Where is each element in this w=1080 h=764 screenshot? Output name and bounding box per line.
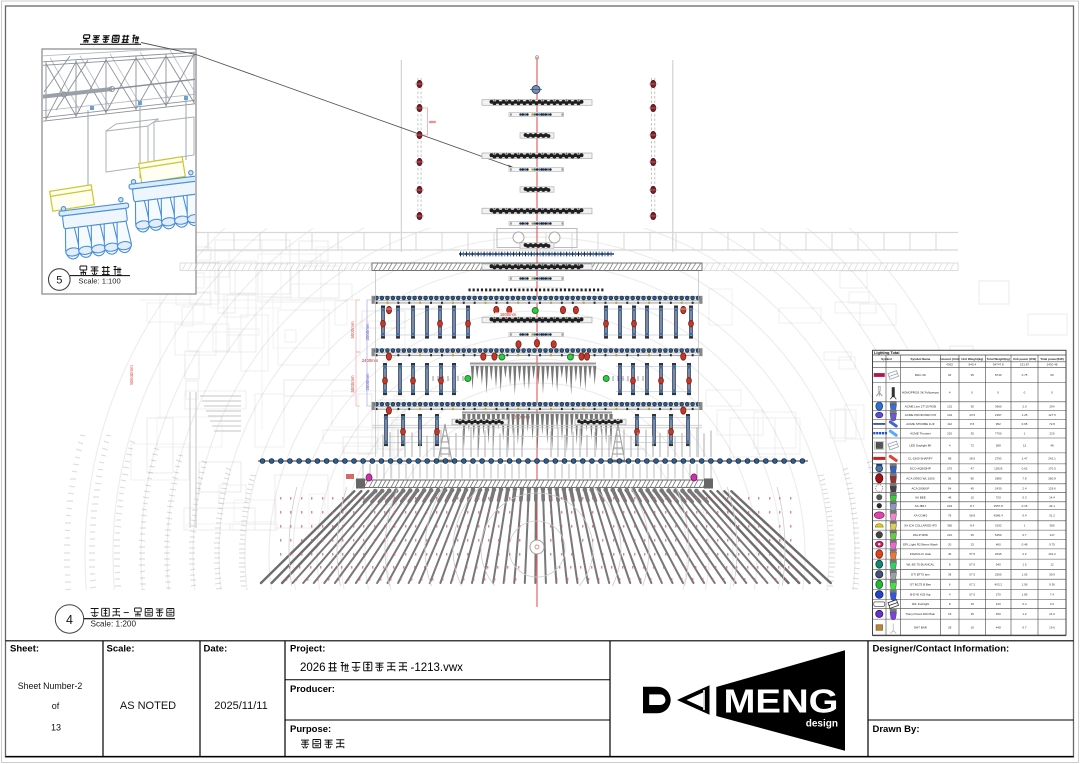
svg-text:Designer/Contact Information:: Designer/Contact Information: bbox=[873, 644, 1010, 655]
svg-text:380: 380 bbox=[947, 524, 952, 528]
svg-text:1.2: 1.2 bbox=[1022, 612, 1027, 616]
svg-text:8.7: 8.7 bbox=[970, 504, 975, 508]
svg-text:0.7: 0.7 bbox=[1022, 533, 1027, 537]
svg-text:80: 80 bbox=[971, 477, 975, 481]
svg-text:129.6: 129.6 bbox=[1048, 486, 1056, 490]
svg-text:4000: 4000 bbox=[429, 120, 436, 124]
svg-text:ACME STROBE 1UF: ACME STROBE 1UF bbox=[906, 422, 935, 426]
svg-text:Drawn By:: Drawn By: bbox=[873, 724, 920, 735]
svg-text:280.8: 280.8 bbox=[1048, 477, 1056, 481]
svg-text:B-EYE K25 Aqr: B-EYE K25 Aqr bbox=[910, 593, 931, 597]
svg-text:0.4: 0.4 bbox=[1022, 513, 1027, 517]
svg-text:7.8: 7.8 bbox=[1022, 477, 1027, 481]
svg-text:19.6: 19.6 bbox=[1049, 626, 1055, 630]
svg-text:270: 270 bbox=[996, 593, 1001, 597]
svg-text:ECO AQ500HP: ECO AQ500HP bbox=[910, 467, 931, 471]
svg-text:95: 95 bbox=[971, 373, 975, 377]
svg-text:-1213.vwx: -1213.vwx bbox=[411, 662, 464, 674]
svg-text:2.4: 2.4 bbox=[1022, 486, 1027, 490]
svg-text:170.5: 170.5 bbox=[1048, 467, 1056, 471]
svg-text:39.9: 39.9 bbox=[1049, 572, 1055, 576]
svg-text:2557.8: 2557.8 bbox=[994, 504, 1004, 508]
svg-text:2565: 2565 bbox=[995, 572, 1002, 576]
svg-text:78: 78 bbox=[948, 513, 952, 517]
svg-text:3.2: 3.2 bbox=[1050, 602, 1055, 606]
svg-text:16: 16 bbox=[971, 626, 975, 630]
svg-text:WL BS 75 BLANCAL: WL BS 75 BLANCAL bbox=[906, 562, 934, 566]
svg-text:448: 448 bbox=[996, 626, 1001, 630]
svg-text:2.0: 2.0 bbox=[1022, 404, 1027, 408]
svg-text:GT BC75 B.Bse: GT BC75 B.Bse bbox=[910, 583, 932, 587]
svg-text:69: 69 bbox=[1050, 373, 1054, 377]
svg-text:Total power(KW): Total power(KW) bbox=[1040, 357, 1064, 361]
svg-text:Unit power (KW): Unit power (KW) bbox=[1013, 357, 1036, 361]
svg-text:67.5: 67.5 bbox=[969, 593, 975, 597]
svg-text:54747.8: 54747.8 bbox=[993, 363, 1004, 367]
svg-text:36: 36 bbox=[948, 477, 952, 481]
svg-text:1.5: 1.5 bbox=[1022, 562, 1027, 566]
svg-text:4362: 4362 bbox=[946, 363, 953, 367]
svg-text:0.7: 0.7 bbox=[1022, 626, 1027, 630]
svg-text:403.2: 403.2 bbox=[994, 583, 1002, 587]
svg-text:Sheet:: Sheet: bbox=[10, 644, 39, 655]
svg-text:5250: 5250 bbox=[995, 533, 1002, 537]
svg-text:48: 48 bbox=[1050, 444, 1054, 448]
svg-text:54: 54 bbox=[948, 486, 952, 490]
svg-text:50640mm: 50640mm bbox=[129, 365, 134, 385]
svg-text:1.05: 1.05 bbox=[1022, 572, 1028, 576]
svg-text:720: 720 bbox=[996, 495, 1001, 499]
svg-text:92: 92 bbox=[948, 373, 952, 377]
svg-text:952: 952 bbox=[996, 422, 1001, 426]
svg-text:8.5: 8.5 bbox=[970, 422, 975, 426]
svg-text:0.48: 0.48 bbox=[1022, 542, 1028, 546]
svg-text:25: 25 bbox=[971, 612, 975, 616]
svg-text:450: 450 bbox=[996, 612, 1001, 616]
svg-text:25: 25 bbox=[971, 533, 975, 537]
svg-text:101.2: 101.2 bbox=[1048, 552, 1056, 556]
svg-text:9.36: 9.36 bbox=[1049, 583, 1055, 587]
svg-text:112: 112 bbox=[947, 422, 952, 426]
svg-text:KAVACH II Halo: KAVACH II Halo bbox=[910, 552, 932, 556]
svg-text:28.5: 28.5 bbox=[969, 457, 975, 461]
svg-text:2430.48: 2430.48 bbox=[1047, 363, 1058, 367]
svg-text:Symbol: Symbol bbox=[881, 357, 892, 361]
svg-text:5000mm: 5000mm bbox=[350, 375, 355, 392]
svg-text:Sheet Number-2: Sheet Number-2 bbox=[18, 681, 83, 691]
svg-text:38: 38 bbox=[948, 572, 952, 576]
svg-text:12: 12 bbox=[1050, 562, 1054, 566]
svg-text:Scale: 1:200: Scale: 1:200 bbox=[91, 620, 137, 629]
svg-text:2430: 2430 bbox=[995, 486, 1002, 490]
svg-text:ACA CREO WL 1000: ACA CREO WL 1000 bbox=[906, 477, 935, 481]
svg-text:Total Weight(kg): Total Weight(kg) bbox=[987, 357, 1010, 361]
svg-text:460: 460 bbox=[996, 542, 1001, 546]
svg-text:4: 4 bbox=[66, 613, 73, 627]
svg-text:264: 264 bbox=[1049, 404, 1054, 408]
svg-text:8740: 8740 bbox=[995, 373, 1002, 377]
svg-text:7700: 7700 bbox=[995, 431, 1002, 435]
svg-text:67.5: 67.5 bbox=[969, 572, 975, 576]
svg-text:MAC 2K: MAC 2K bbox=[915, 373, 926, 377]
svg-text:12: 12 bbox=[1023, 444, 1027, 448]
svg-text:CL-1500 SHARPY: CL-1500 SHARPY bbox=[908, 457, 933, 461]
svg-text:design: design bbox=[806, 719, 838, 730]
svg-text:2000mm: 2000mm bbox=[365, 323, 370, 340]
svg-text:ACME Line 27*10 RGB: ACME Line 27*10 RGB bbox=[905, 404, 936, 408]
svg-text:MENG: MENG bbox=[724, 682, 839, 719]
svg-text:AS NOTED: AS NOTED bbox=[120, 700, 176, 712]
svg-text:132: 132 bbox=[947, 404, 952, 408]
svg-text:0.75: 0.75 bbox=[1022, 373, 1028, 377]
svg-text:3192: 3192 bbox=[995, 524, 1002, 528]
svg-text:Lighting Total: Lighting Total bbox=[874, 350, 899, 355]
svg-text:Amount (Unit): Amount (Unit) bbox=[940, 357, 960, 361]
svg-text:45: 45 bbox=[971, 486, 975, 490]
svg-text:3960: 3960 bbox=[995, 404, 1002, 408]
svg-text:ACA 2000UP: ACA 2000UP bbox=[912, 486, 930, 490]
svg-text:LED Daylight 8K: LED Daylight 8K bbox=[909, 444, 931, 448]
svg-text:15: 15 bbox=[971, 602, 975, 606]
svg-text:940.4: 940.4 bbox=[968, 363, 976, 367]
svg-text:294: 294 bbox=[947, 504, 952, 508]
svg-text:20: 20 bbox=[948, 542, 952, 546]
svg-text:35: 35 bbox=[971, 431, 975, 435]
svg-text:Scale: 1:100: Scale: 1:100 bbox=[79, 277, 121, 286]
svg-text:5: 5 bbox=[56, 275, 62, 287]
svg-text:1.56: 1.56 bbox=[1022, 583, 1028, 587]
svg-text:4586.4: 4586.4 bbox=[994, 513, 1004, 517]
svg-text:220: 220 bbox=[947, 431, 952, 435]
svg-text:Project:: Project: bbox=[290, 644, 325, 655]
svg-text:275: 275 bbox=[947, 467, 952, 471]
svg-text:DHT BAR: DHT BAR bbox=[914, 626, 928, 630]
svg-text:Date:: Date: bbox=[204, 644, 228, 655]
svg-text:44.1: 44.1 bbox=[1049, 504, 1055, 508]
svg-text:72.8: 72.8 bbox=[1049, 422, 1055, 426]
svg-text:GTI BT75 arm: GTI BT75 arm bbox=[911, 572, 931, 576]
svg-text:72: 72 bbox=[971, 444, 975, 448]
svg-text:2026: 2026 bbox=[300, 662, 326, 674]
svg-text:2.47: 2.47 bbox=[1022, 457, 1028, 461]
svg-text:30: 30 bbox=[971, 404, 975, 408]
svg-text:5000mm: 5000mm bbox=[350, 321, 355, 338]
svg-text:242.1: 242.1 bbox=[1048, 457, 1056, 461]
svg-text:0.15: 0.15 bbox=[1022, 504, 1028, 508]
svg-text:JDL Full-light: JDL Full-light bbox=[912, 602, 930, 606]
svg-text:WH-P MINI: WH-P MINI bbox=[913, 533, 928, 537]
svg-text:2025/11/11: 2025/11/11 bbox=[214, 700, 267, 712]
svg-text:7.4: 7.4 bbox=[1050, 593, 1055, 597]
svg-text:XA JB17: XA JB17 bbox=[915, 504, 927, 508]
svg-text:31.2: 31.2 bbox=[1049, 513, 1055, 517]
svg-text:102: 102 bbox=[947, 413, 952, 417]
svg-text:67.5: 67.5 bbox=[969, 562, 975, 566]
svg-text:8.4: 8.4 bbox=[970, 524, 975, 528]
svg-text:18: 18 bbox=[948, 612, 952, 616]
svg-text:2880: 2880 bbox=[995, 477, 1002, 481]
svg-text:12925: 12925 bbox=[994, 467, 1003, 471]
svg-text:9.75: 9.75 bbox=[1049, 542, 1055, 546]
svg-text:XA BEE: XA BEE bbox=[915, 495, 926, 499]
svg-text:57.5: 57.5 bbox=[969, 552, 975, 556]
svg-text:380: 380 bbox=[1049, 524, 1054, 528]
svg-text:0.65: 0.65 bbox=[1022, 422, 1028, 426]
svg-text:1800mm: 1800mm bbox=[500, 312, 517, 317]
svg-text:2793: 2793 bbox=[995, 457, 1002, 461]
svg-text:288: 288 bbox=[996, 444, 1001, 448]
svg-text:67.2: 67.2 bbox=[969, 583, 975, 587]
svg-text:28: 28 bbox=[948, 626, 952, 630]
svg-text:0.62: 0.62 bbox=[1022, 467, 1028, 471]
svg-text:Purpose:: Purpose: bbox=[290, 724, 331, 735]
svg-text:0.4: 0.4 bbox=[1022, 602, 1027, 606]
svg-text:EPL Light R2 Beam Wash: EPL Light R2 Beam Wash bbox=[903, 542, 938, 546]
svg-text:2397: 2397 bbox=[995, 413, 1002, 417]
svg-text:540: 540 bbox=[996, 562, 1001, 566]
svg-text:Symbol Name: Symbol Name bbox=[910, 357, 930, 361]
svg-text:XA COMS: XA COMS bbox=[914, 513, 928, 517]
svg-text:47: 47 bbox=[971, 467, 975, 471]
svg-text:1.85: 1.85 bbox=[1022, 593, 1028, 597]
svg-text:2.2: 2.2 bbox=[1022, 552, 1027, 556]
svg-text:XA ICH COLLAROD IP3: XA ICH COLLAROD IP3 bbox=[904, 524, 937, 528]
svg-text:ACME Thruster: ACME Thruster bbox=[910, 431, 931, 435]
svg-text:Unit Weight(kg): Unit Weight(kg) bbox=[961, 357, 983, 361]
svg-text:1.25: 1.25 bbox=[1022, 413, 1028, 417]
svg-text:120: 120 bbox=[996, 602, 1001, 606]
svg-text:13: 13 bbox=[51, 723, 61, 733]
svg-text:151.87: 151.87 bbox=[1020, 363, 1030, 367]
svg-text:46: 46 bbox=[948, 552, 952, 556]
svg-text:of: of bbox=[52, 701, 60, 711]
svg-text:Producer:: Producer: bbox=[290, 684, 335, 695]
svg-text:2400mm: 2400mm bbox=[362, 358, 379, 363]
svg-text:ACME PROFONDO P6: ACME PROFONDO P6 bbox=[905, 413, 937, 417]
svg-text:23: 23 bbox=[971, 542, 975, 546]
svg-text:127.5: 127.5 bbox=[1048, 413, 1056, 417]
svg-text:HONGPROS 3K Followspot: HONGPROS 3K Followspot bbox=[902, 390, 939, 394]
svg-text:48: 48 bbox=[948, 495, 952, 499]
svg-text:Scale:: Scale: bbox=[107, 644, 135, 655]
svg-text:58.8: 58.8 bbox=[969, 513, 975, 517]
svg-text:147: 147 bbox=[1049, 533, 1054, 537]
svg-text:Tianyi Flood 400 Plain: Tianyi Flood 400 Plain bbox=[906, 612, 936, 616]
svg-text:2000mm: 2000mm bbox=[365, 373, 370, 390]
svg-text:98: 98 bbox=[948, 457, 952, 461]
svg-text:14.4: 14.4 bbox=[1049, 495, 1055, 499]
svg-text:220: 220 bbox=[1049, 431, 1054, 435]
svg-text:21.6: 21.6 bbox=[1049, 612, 1055, 616]
svg-text:15: 15 bbox=[971, 495, 975, 499]
svg-text:210: 210 bbox=[947, 533, 952, 537]
svg-text:23.5: 23.5 bbox=[969, 413, 975, 417]
svg-text:2645: 2645 bbox=[995, 552, 1002, 556]
svg-text:0.3: 0.3 bbox=[1022, 495, 1027, 499]
